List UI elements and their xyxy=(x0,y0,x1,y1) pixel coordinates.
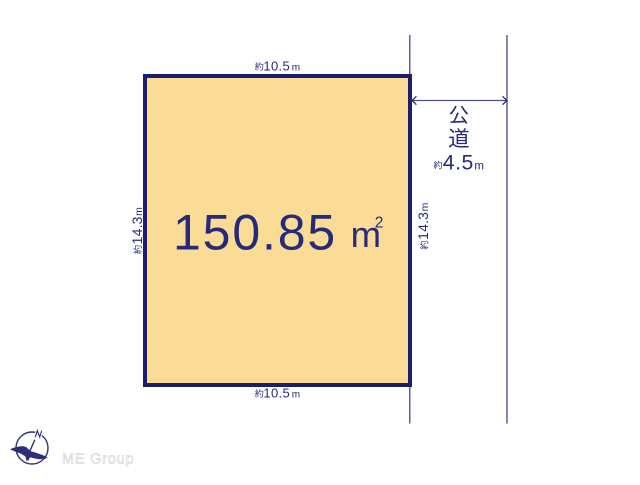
svg-text:m: m xyxy=(474,161,484,173)
svg-text:m: m xyxy=(292,390,300,401)
svg-text:150.85: 150.85 xyxy=(173,205,337,261)
svg-text:m: m xyxy=(419,202,431,211)
svg-text:m: m xyxy=(292,63,300,74)
svg-text:14.3: 14.3 xyxy=(415,212,431,240)
svg-text:10.5: 10.5 xyxy=(263,386,290,401)
svg-text:2: 2 xyxy=(375,214,384,231)
svg-text:14.3: 14.3 xyxy=(129,216,145,244)
svg-text:4.5: 4.5 xyxy=(443,152,474,175)
svg-text:m: m xyxy=(133,207,145,216)
svg-text:ME Group: ME Group xyxy=(62,452,134,468)
svg-text:10.5: 10.5 xyxy=(263,59,290,74)
